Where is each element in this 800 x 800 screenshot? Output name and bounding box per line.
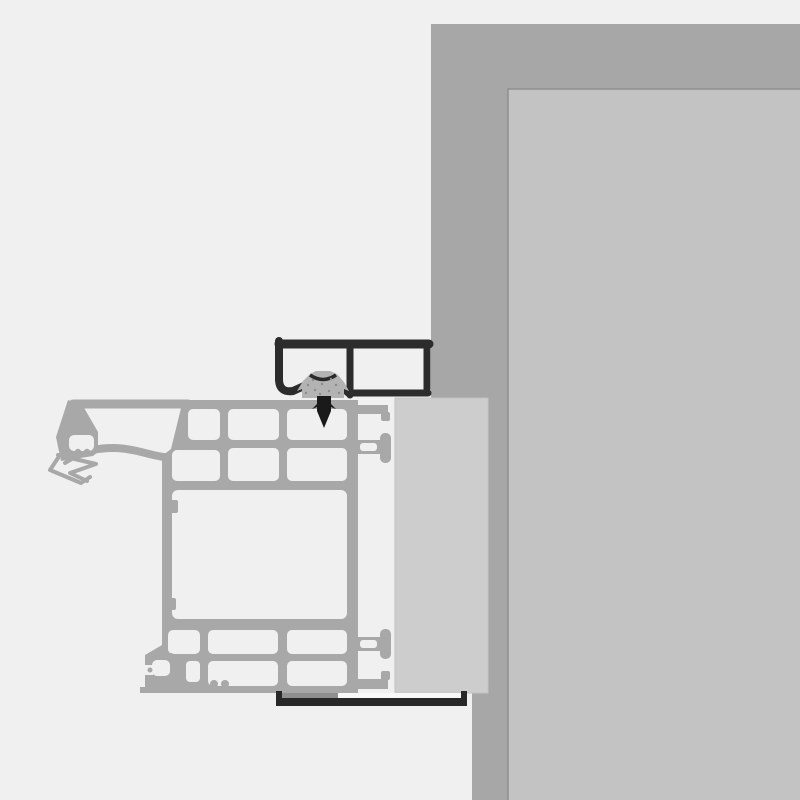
chamber-nose [69, 435, 94, 451]
retention-lip-top [381, 412, 390, 421]
retention-lip-bottom [381, 671, 390, 680]
chamber-r1c3 [287, 409, 347, 440]
chamber-r2c2 [228, 448, 279, 481]
boss-hollow [152, 660, 170, 676]
boss-tooth [148, 668, 153, 673]
chamber-b1c2 [208, 630, 278, 654]
wall-inner-reveal [508, 89, 800, 800]
wall-tab-upper [170, 500, 178, 513]
screw-channel-bump-1 [210, 680, 218, 688]
section-drawing: Window frame installation cross-section … [0, 0, 800, 800]
t-connector-bottom-cap [380, 629, 391, 659]
chamber-b1c3 [287, 630, 347, 654]
t-connector-bottom-slot [360, 640, 377, 648]
chamber-b2c3 [287, 661, 347, 686]
chamber-b2c2 [208, 661, 278, 686]
chamber-r2c3 [287, 448, 347, 481]
bottom-mounting-rail [276, 691, 467, 706]
chamber-main [172, 490, 347, 619]
chamber-b2c1 [186, 661, 200, 682]
chamber-r2c1 [172, 450, 220, 481]
chamber-r1c2 [228, 409, 279, 440]
rail-gasket-strip [282, 693, 338, 698]
screw-channel-bump-2 [221, 680, 229, 688]
wall-tab-lower [168, 598, 176, 610]
boss-side-nub [173, 666, 180, 675]
nose-notch-bump-1 [75, 449, 81, 455]
infill-panel [395, 398, 488, 693]
chamber-b1c1 [168, 630, 200, 654]
technical-drawing-canvas: Window frame installation cross-section … [0, 0, 800, 800]
nose-notch-bump-2 [84, 449, 90, 455]
t-connector-top-slot [360, 443, 377, 451]
chamber-r1c1 [188, 409, 220, 440]
retention-arm-bottom [356, 679, 388, 689]
t-connector-top-cap [380, 433, 391, 463]
